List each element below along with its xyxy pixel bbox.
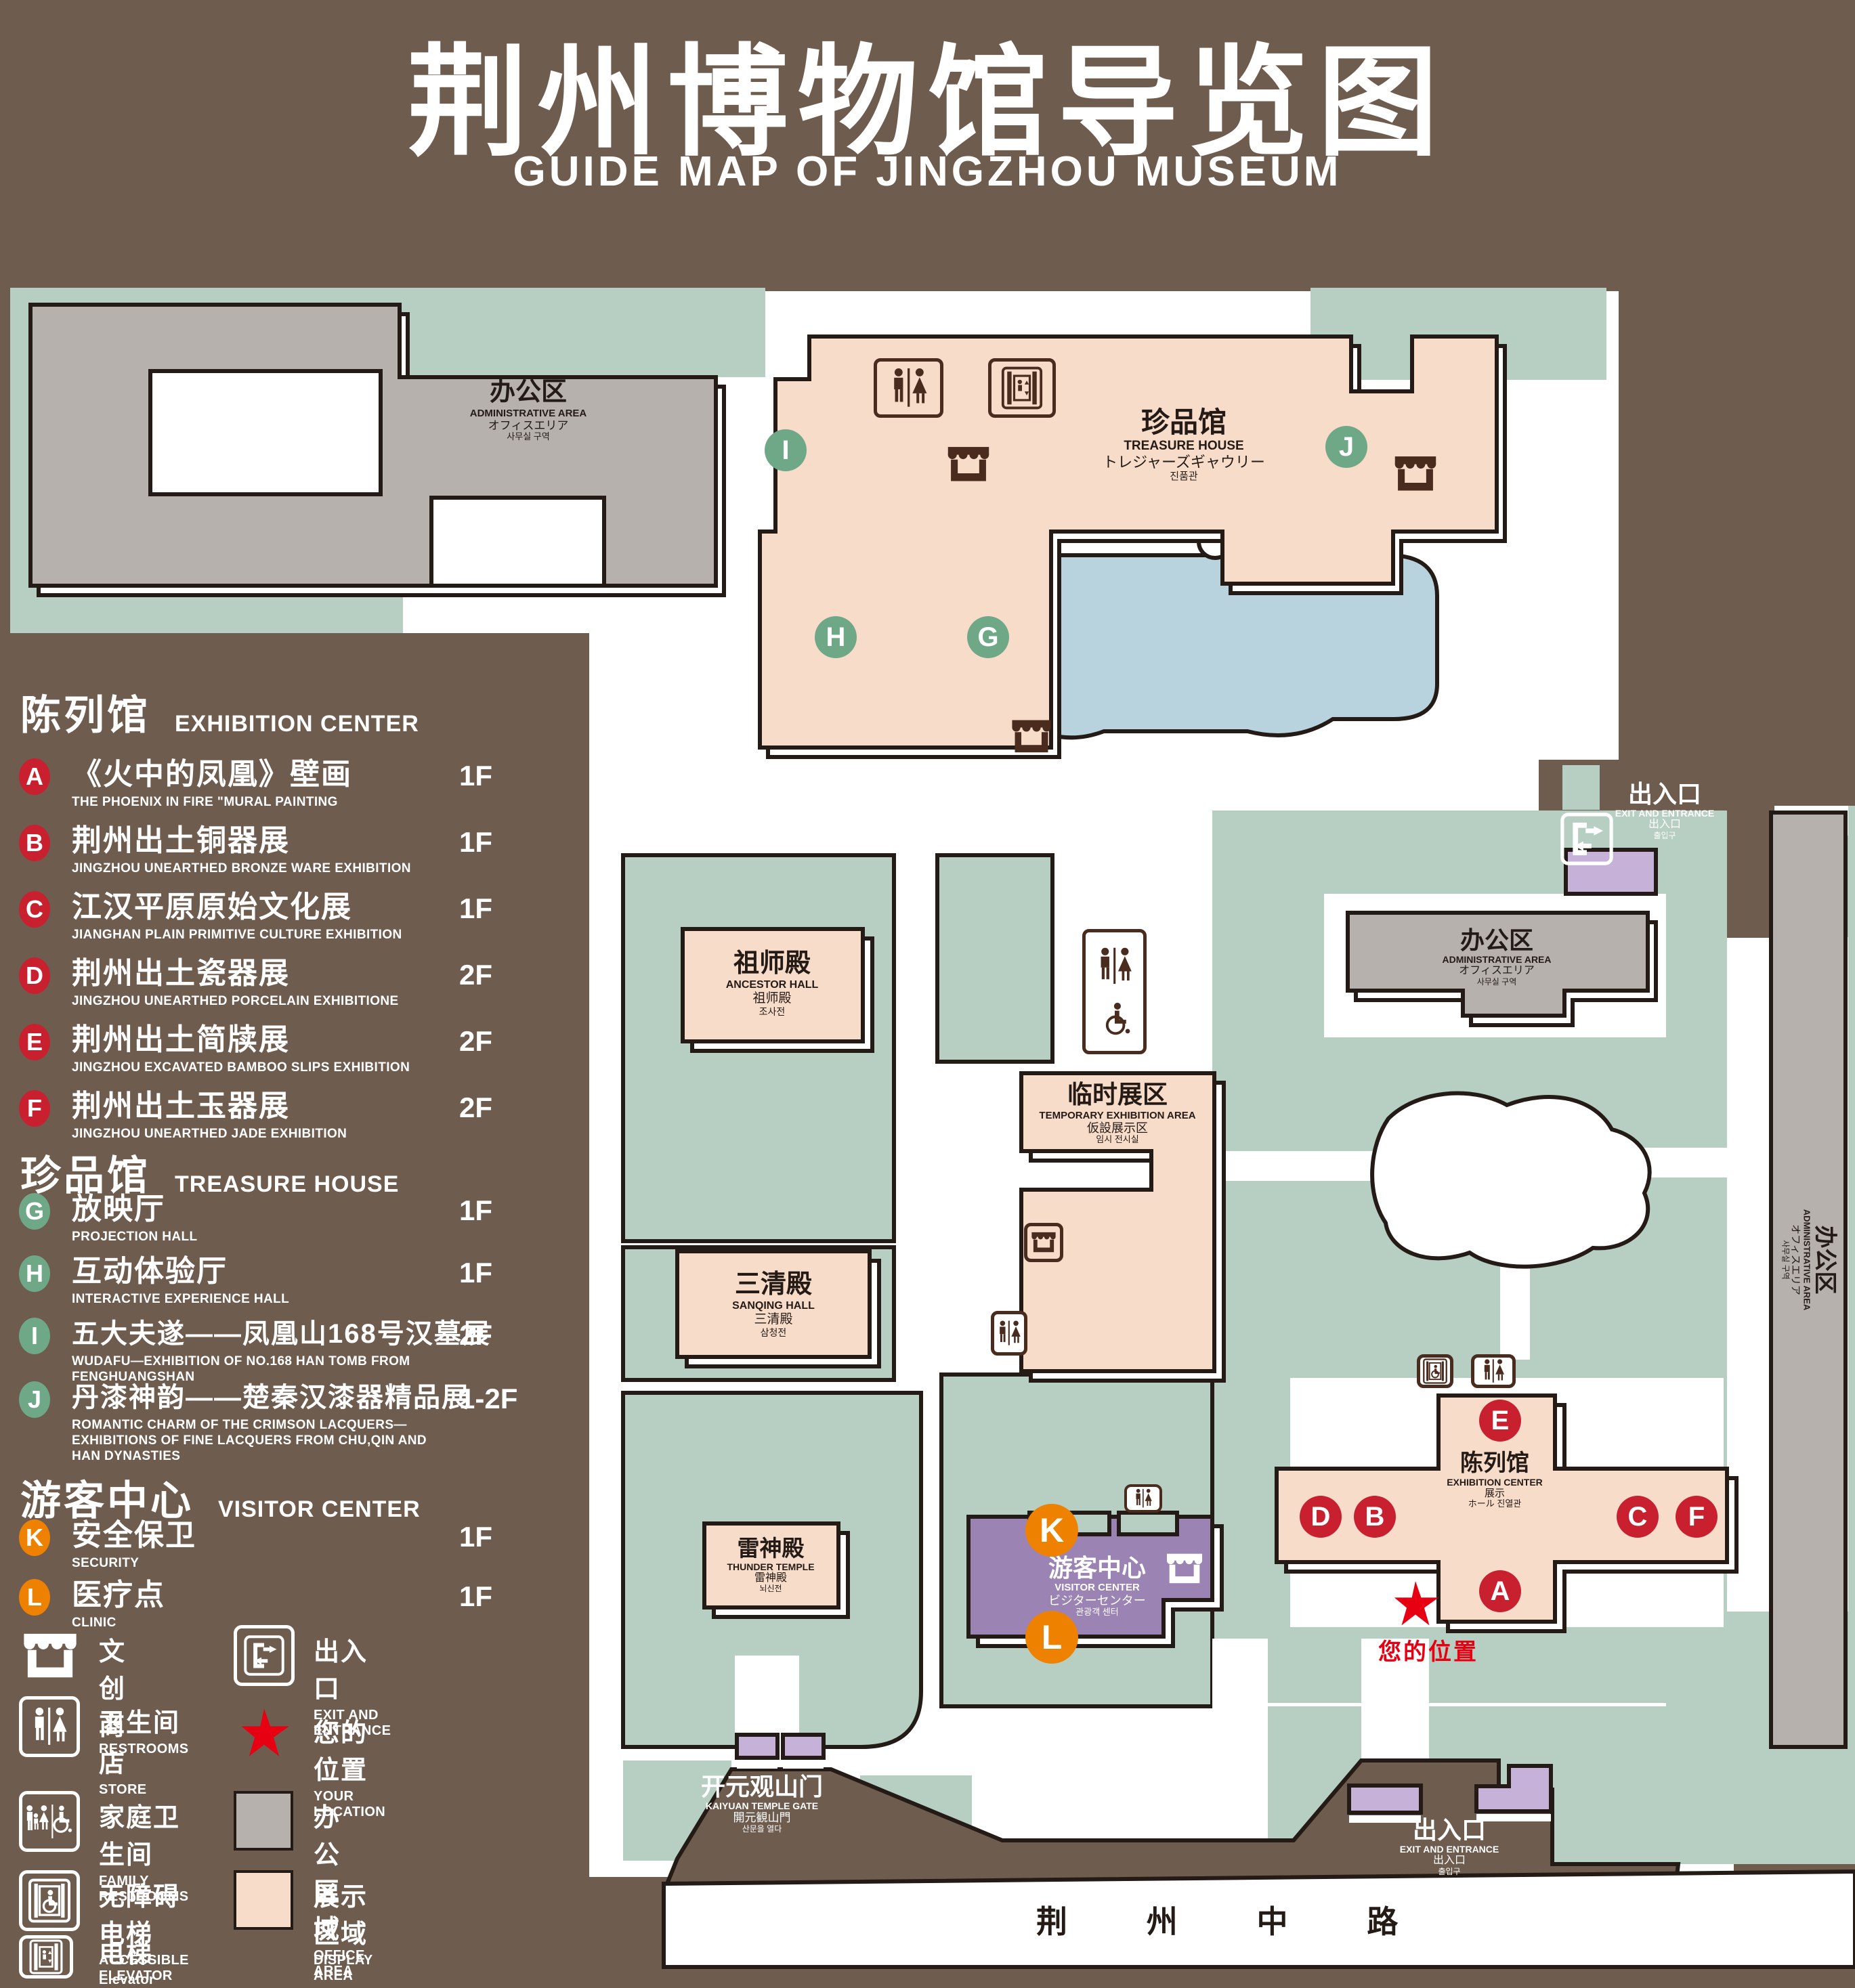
badge-e: E (19, 1024, 50, 1060)
label-zh: 办公区 (1811, 1159, 1837, 1362)
item-floor: 2F (459, 1319, 492, 1352)
legend-item-b: B 荆州出土铜器展 JINGZHOU UNEARTHED BRONZE WARE… (19, 823, 534, 876)
restroom-family-tile (1082, 929, 1147, 1054)
item-floor: 1F (459, 1257, 492, 1289)
elevator-icon (988, 358, 1056, 418)
label-jp: オフィスエリア (1395, 965, 1598, 977)
symbol-zh: 展示区域 (314, 1876, 372, 1950)
legend-item-g: G 放映厅 PROJECTION HALL 1F (19, 1192, 534, 1245)
label-your-location: 您的位置 (1378, 1633, 1478, 1666)
map-badge-b: B (1354, 1496, 1396, 1538)
badge-h: H (19, 1255, 50, 1292)
label-en: EXIT AND ENTRANCE (1382, 1844, 1517, 1855)
label-en: ADMINISTRATIVE AREA (1395, 954, 1598, 965)
symbol-en: RESTROOMS (99, 1742, 189, 1757)
label-kr: 출입구 (1597, 831, 1732, 841)
badge-i: I (19, 1318, 50, 1354)
badge-k: K (19, 1519, 50, 1556)
label-kr: 삼청전 (672, 1327, 875, 1338)
restroom-icon (874, 358, 943, 418)
label-kr: 임시 전시실 (1016, 1135, 1219, 1145)
label-kr: 사무실 구역 (1780, 1159, 1789, 1362)
exit-gate (1349, 1786, 1421, 1813)
label-kr: 산문을 열다 (660, 1825, 863, 1834)
legend-item-e: E 荆州出土简牍展 JINGZHOU EXCAVATED BAMBOO SLIP… (19, 1022, 534, 1075)
label-exhibition-center: 陈列馆 EXHIBITION CENTER 展示 ホール 진열관 (1410, 1450, 1579, 1509)
store-icon (1384, 450, 1447, 502)
label-admin-center: 办公区 ADMINISTRATIVE AREA オフィスエリア 사무실 구역 (1395, 926, 1598, 987)
page-subtitle: GUIDE MAP OF JINGZHOU MUSEUM (0, 148, 1855, 196)
label-jp: 祖师殿 (670, 991, 874, 1006)
map-badge-g: G (967, 616, 1009, 658)
label-jp: オフィスエリア (427, 419, 630, 433)
label-zh: 出入口 (1597, 780, 1732, 808)
restroom-icon (1094, 945, 1136, 987)
gate-door (737, 1735, 777, 1758)
label-jp: オフィスエリア (1789, 1159, 1801, 1362)
label-jp: 仮設展示区 (1016, 1121, 1219, 1136)
accessible-icon (1096, 1000, 1134, 1038)
item-floor: 1F (459, 760, 492, 792)
symbol-zh: 家庭卫生间 (99, 1796, 189, 1871)
legend-item-d: D 荆州出土瓷器展 JINGZHOU UNEARTHED PORCELAIN E… (19, 956, 534, 1009)
path (1212, 1151, 1392, 1181)
store-icon (1002, 714, 1061, 763)
map-badge-d: D (1300, 1496, 1342, 1538)
map-badge-i: I (765, 429, 807, 471)
label-treasure-house: 珍品馆 TREASURE HOUSE トレジャーズギャウリー 진품관 (1048, 406, 1319, 483)
label-kr: ホール 진열관 (1410, 1499, 1579, 1509)
gate-door (783, 1735, 824, 1758)
location-star-icon (1390, 1579, 1441, 1634)
label-en: KAIYUAN TEMPLE GATE (660, 1800, 863, 1811)
map-badge-a: A (1479, 1570, 1521, 1612)
label-jp: 開元観山門 (660, 1811, 863, 1825)
gate-step (737, 1761, 777, 1769)
label-temporary-area: 临时展区 TEMPORARY EXHIBITION AREA 仮設展示区 임시 … (1016, 1081, 1219, 1145)
map-badge-f: F (1676, 1496, 1718, 1538)
item-floor: 1F (459, 1521, 492, 1553)
item-floor: 1F (459, 892, 492, 925)
label-admin-northwest: 办公区 ADMINISTRATIVE AREA オフィスエリア 사무실 구역 (427, 378, 630, 442)
symbol-en: DISPLAY AREA (314, 1953, 372, 1984)
label-exit-northeast: 出入口 EXIT AND ENTRANCE 出入口 출입구 (1597, 780, 1732, 841)
item-en: ROMANTIC CHARM OF THE CRIMSON LACQUERS—E… (72, 1417, 458, 1464)
map-badge-j: J (1325, 426, 1367, 468)
label-en: SANQING HALL (672, 1300, 875, 1312)
label-ancestor-hall: 祖师殿 ANCESTOR HALL 祖师殿 조사전 (670, 949, 874, 1017)
badge-b: B (19, 825, 50, 861)
green-patch (1562, 765, 1600, 810)
map-badge-e: E (1479, 1400, 1521, 1442)
legend-item-l: L 医疗点 CLINIC 1F (19, 1578, 534, 1630)
legend-item-i: I 五大夫遂——凤凰山168号汉墓展 WUDAFU—EXHIBITION OF … (19, 1316, 534, 1385)
label-en: ADMINISTRATIVE AREA (1801, 1159, 1812, 1362)
item-floor: 1F (459, 826, 492, 859)
display-swatch (234, 1870, 293, 1930)
green-plot-center (937, 855, 1052, 1062)
gate-step (1566, 896, 1656, 904)
accessible-elevator-icon (1417, 1354, 1453, 1388)
label-zh: 珍品馆 (1048, 406, 1319, 439)
symbol-en: STORE (99, 1782, 147, 1798)
item-en: INTERACTIVE EXPERIENCE HALL (72, 1291, 458, 1307)
label-exit-south: 出入口 EXIT AND ENTRANCE 出入口 출입구 (1382, 1816, 1517, 1877)
label-road: 荆 州 中 路 (1036, 1897, 1433, 1942)
label-admin-east: 办公区 ADMINISTRATIVE AREA オフィスエリア 사무실 구역 (1780, 1159, 1837, 1362)
label-jp: 展示 (1410, 1488, 1579, 1499)
badge-d: D (19, 957, 50, 994)
store-icon (19, 1625, 81, 1687)
item-en: PROJECTION HALL (72, 1229, 458, 1245)
label-kr: 출입구 (1382, 1867, 1517, 1877)
store-icon (937, 440, 1000, 492)
legend-item-j: J 丹漆神韵——楚秦汉漆器精品展 ROMANTIC CHARM OF THE C… (19, 1380, 534, 1464)
label-zh: 陈列馆 (1410, 1450, 1579, 1477)
label-kr: 뇌신전 (669, 1584, 872, 1594)
visitor-notch (1119, 1513, 1177, 1534)
label-jp: 雷神殿 (669, 1572, 872, 1584)
label-zh: 三清殿 (672, 1270, 875, 1300)
item-floor: 2F (459, 1025, 492, 1058)
legend-item-f: F 荆州出土玉器展 JINGZHOU UNEARTHED JADE EXHIBI… (19, 1089, 534, 1142)
label-jp: 出入口 (1597, 819, 1732, 831)
family-restroom-icon (24, 1802, 75, 1840)
label-kr: 사무실 구역 (427, 432, 630, 442)
map-badge-l: L (1025, 1611, 1078, 1664)
restroom-icon (991, 1311, 1027, 1356)
badge-a: A (19, 758, 50, 795)
label-zh: 办公区 (1395, 926, 1598, 954)
label-kr: 조사전 (670, 1006, 874, 1017)
label-en: ADMINISTRATIVE AREA (427, 408, 630, 419)
gate-step (783, 1761, 824, 1769)
store-icon (1164, 1548, 1206, 1593)
item-floor: 2F (459, 959, 492, 991)
item-en: JINGZHOU EXCAVATED BAMBOO SLIPS EXHIBITI… (72, 1060, 458, 1075)
symbol-zh: 出入口 (314, 1630, 391, 1705)
label-zh: 临时展区 (1016, 1081, 1219, 1110)
label-jp: 出入口 (1382, 1855, 1517, 1867)
office-swatch (234, 1791, 293, 1851)
item-en: SECURITY (72, 1555, 458, 1571)
label-zh: 办公区 (427, 378, 630, 408)
item-floor: 1-2F (459, 1383, 517, 1415)
label-zh: 开元观山门 (660, 1773, 863, 1800)
label-kr: 진품관 (1048, 471, 1319, 482)
item-floor: 1F (459, 1580, 492, 1613)
green-sliver (1848, 806, 1855, 1754)
badge-g: G (19, 1193, 50, 1230)
label-en: EXIT AND ENTRANCE (1597, 808, 1732, 819)
label-zh: 雷神殿 (669, 1536, 872, 1561)
label-kaiyuan-gate: 开元观山门 KAIYUAN TEMPLE GATE 開元観山門 산문을 열다 (660, 1773, 863, 1834)
courtyard (431, 498, 604, 586)
courtyard (150, 371, 381, 494)
badge-f: F (19, 1090, 50, 1127)
exit-icon (1558, 810, 1616, 871)
location-star-icon (236, 1706, 292, 1762)
label-en: EXHIBITION CENTER (1410, 1477, 1579, 1488)
legend-item-a: A 《火中的凤凰》壁画 THE PHOENIX IN FIRE "MURAL P… (19, 757, 534, 810)
symbol-en: Elevator (99, 1972, 154, 1988)
section-title-en: EXHIBITION CENTER (175, 711, 419, 741)
label-en: ANCESTOR HALL (670, 979, 874, 991)
label-thunder-temple: 雷神殿 THUNDER TEMPLE 雷神殿 뇌신전 (669, 1536, 872, 1594)
legend-section-exhibition-center: 陈列馆 EXHIBITION CENTER (20, 683, 419, 741)
map-badge-k: K (1025, 1504, 1078, 1557)
store-icon (1024, 1223, 1063, 1262)
label-zh: 出入口 (1382, 1816, 1517, 1844)
restroom-icon (28, 1705, 71, 1748)
badge-j: J (19, 1381, 50, 1418)
label-jp: ビジターセンター (996, 1594, 1199, 1608)
legend-item-h: H 互动体验厅 INTERACTIVE EXPERIENCE HALL 1F (19, 1254, 534, 1307)
label-zh: 祖师殿 (670, 949, 874, 979)
label-en: THUNDER TEMPLE (669, 1561, 872, 1572)
label-sanqing-hall: 三清殿 SANQING HALL 三清殿 삼청전 (672, 1270, 875, 1338)
elevator-icon (28, 1939, 64, 1974)
symbol-zh: 您的位置 (314, 1712, 385, 1786)
restroom-icon (1124, 1484, 1162, 1513)
legend-item-c: C 江汉平原原始文化展 JIANGHAN PLAIN PRIMITIVE CUL… (19, 890, 534, 943)
item-en: THE PHOENIX IN FIRE "MURAL PAINTING (72, 794, 458, 810)
exit-icon (242, 1633, 286, 1678)
symbol-zh: 电梯 (99, 1932, 154, 1970)
section-title-zh: 陈列馆 (20, 683, 150, 741)
item-floor: 1F (459, 1194, 492, 1227)
badge-c: C (19, 891, 50, 928)
item-en: JINGZHOU UNEARTHED BRONZE WARE EXHIBITIO… (72, 861, 458, 876)
accessible-elevator-icon (27, 1878, 72, 1923)
path (1642, 1148, 1728, 1177)
item-floor: 2F (459, 1092, 492, 1124)
label-en: TEMPORARY EXHIBITION AREA (1016, 1110, 1219, 1121)
badge-l: L (19, 1579, 50, 1616)
map-badge-c: C (1617, 1496, 1659, 1538)
item-en: JINGZHOU UNEARTHED PORCELAIN EXHIBITIONE (72, 993, 458, 1009)
label-kr: 관광객 센터 (996, 1607, 1199, 1618)
legend-item-k: K 安全保卫 SECURITY 1F (19, 1518, 534, 1571)
item-en: JIANGHAN PLAIN PRIMITIVE CULTURE EXHIBIT… (72, 927, 458, 943)
label-jp: 三清殿 (672, 1312, 875, 1327)
label-kr: 사무실 구역 (1395, 978, 1598, 987)
map-badge-h: H (815, 616, 857, 658)
label-en: TREASURE HOUSE (1048, 439, 1319, 454)
guide-map-poster: 荆州博物馆导览图 GUIDE MAP OF JINGZHOU MUSEUM 陈列… (0, 0, 1855, 1983)
path (1500, 1265, 1530, 1360)
item-en: JINGZHOU UNEARTHED JADE EXHIBITION (72, 1126, 458, 1142)
symbol-zh: 卫生间 (99, 1702, 189, 1739)
label-jp: トレジャーズギャウリー (1048, 454, 1319, 471)
restroom-icon (1471, 1354, 1516, 1388)
